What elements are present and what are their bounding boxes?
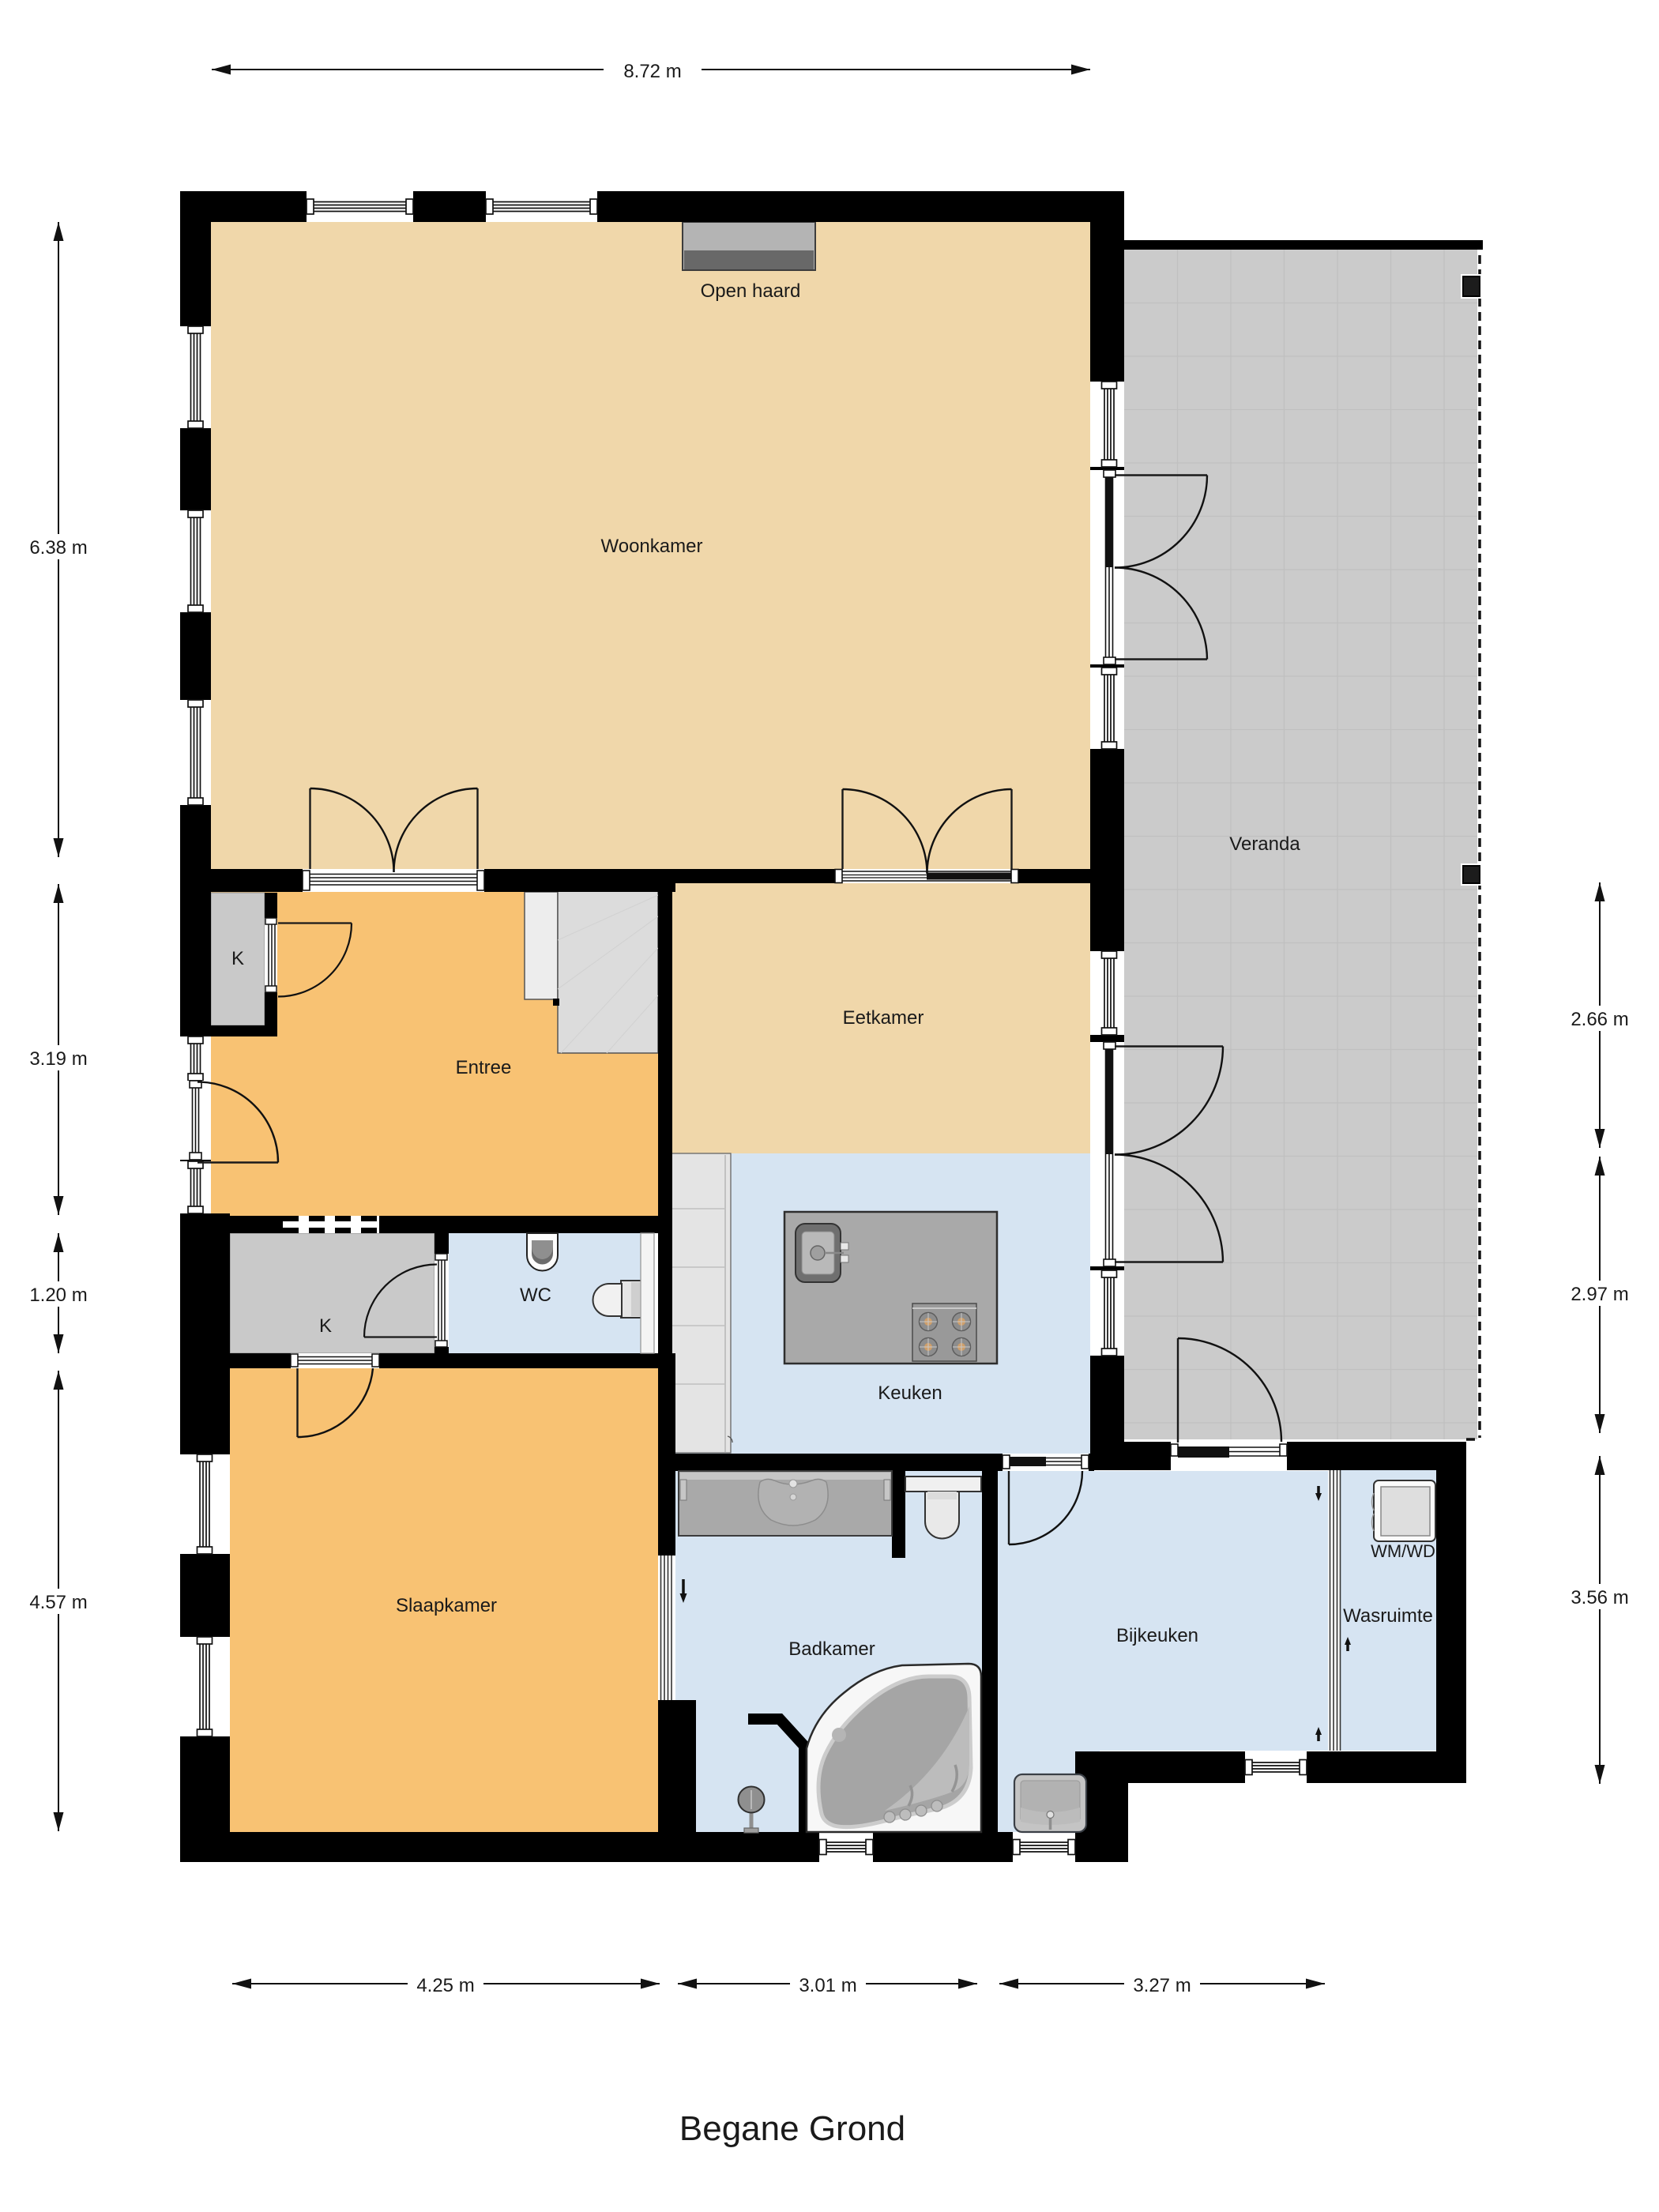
svg-text:8.72 m: 8.72 m [623,61,681,82]
svg-text:WM/WD: WM/WD [1371,1541,1435,1561]
svg-text:Veranda: Veranda [1229,833,1300,855]
svg-text:3.19 m: 3.19 m [29,1048,87,1070]
svg-text:3.01 m: 3.01 m [799,1975,856,1996]
svg-text:3.27 m: 3.27 m [1133,1975,1191,1996]
svg-text:K: K [319,1315,332,1337]
svg-text:Slaapkamer: Slaapkamer [396,1595,497,1616]
svg-text:4.57 m: 4.57 m [29,1592,87,1613]
svg-text:3.56 m: 3.56 m [1571,1587,1628,1608]
svg-text:Begane Grond: Begane Grond [679,2109,905,2148]
svg-text:2.66 m: 2.66 m [1571,1009,1628,1030]
svg-text:Bijkeuken: Bijkeuken [1116,1625,1198,1646]
svg-text:2.97 m: 2.97 m [1571,1284,1628,1305]
svg-text:Woonkamer: Woonkamer [601,536,703,557]
svg-text:Entree: Entree [456,1057,512,1078]
svg-text:Keuken: Keuken [878,1382,942,1404]
svg-text:Open haard: Open haard [701,280,801,302]
svg-text:WC: WC [520,1285,551,1306]
svg-text:4.25 m: 4.25 m [416,1975,474,1996]
svg-text:1.20 m: 1.20 m [29,1285,87,1306]
svg-text:K: K [231,948,244,969]
svg-text:Badkamer: Badkamer [788,1638,875,1660]
svg-text:6.38 m: 6.38 m [29,537,87,559]
svg-text:Wasruimte: Wasruimte [1343,1605,1433,1627]
svg-text:Eetkamer: Eetkamer [843,1007,924,1029]
